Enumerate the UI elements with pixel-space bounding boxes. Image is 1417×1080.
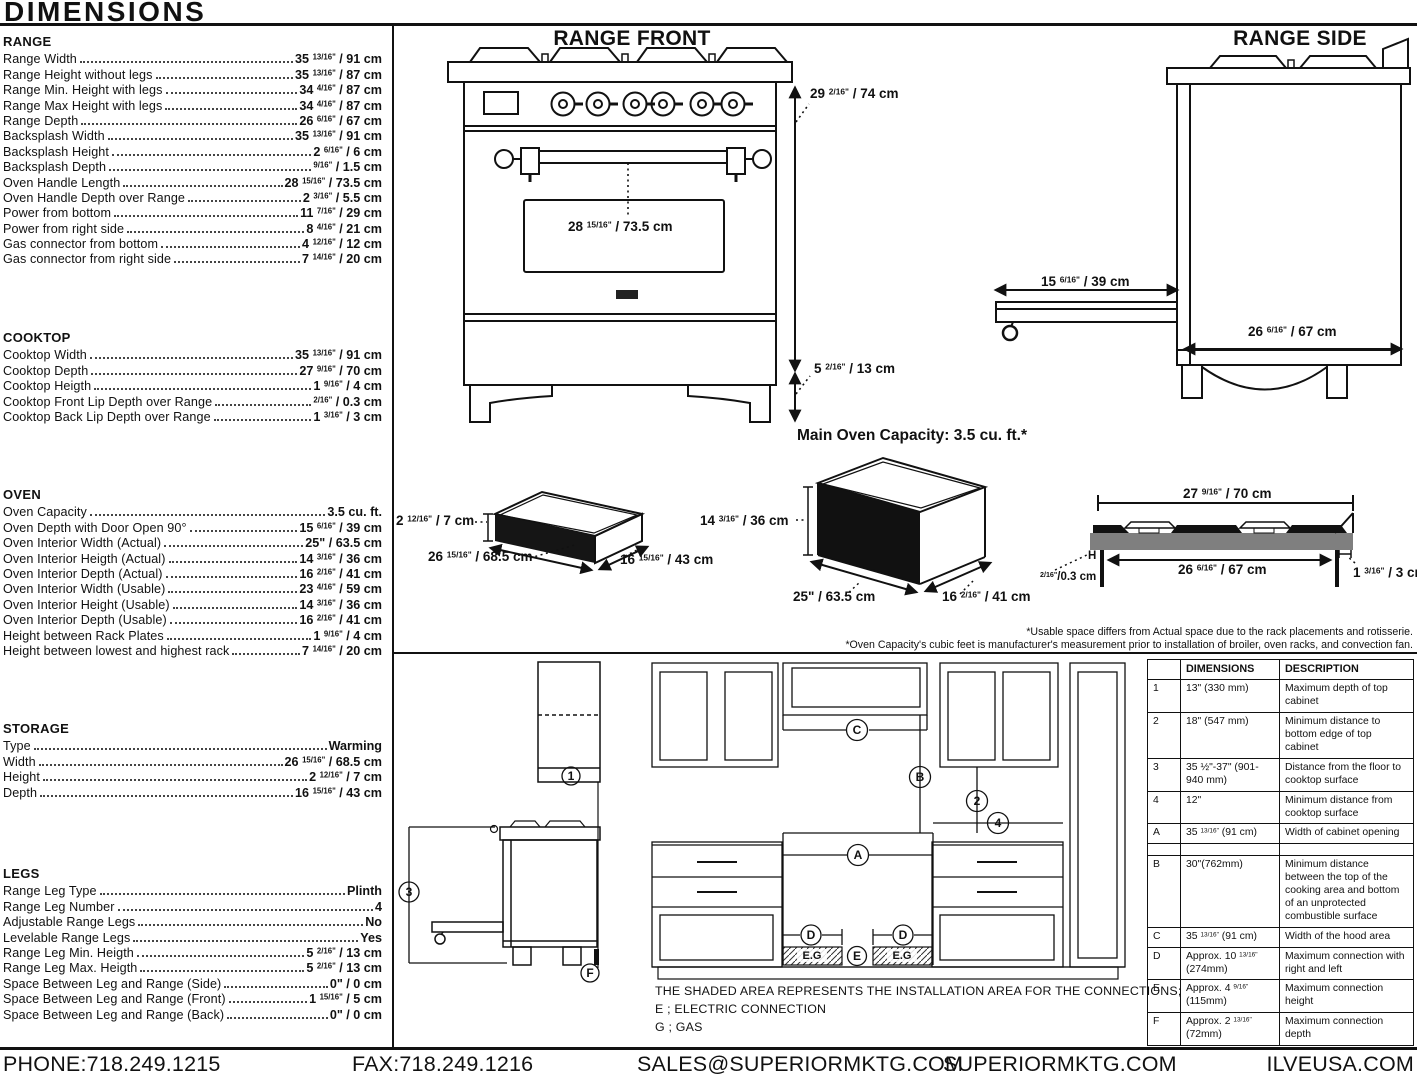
backsplash-lip bbox=[1383, 39, 1408, 68]
spec-value: Warming bbox=[329, 739, 382, 753]
svg-text:D: D bbox=[899, 928, 908, 942]
dotted-leader bbox=[229, 1001, 307, 1003]
spec-row: Range Leg Min. Heigth5 2/16" / 13 cm bbox=[3, 945, 382, 960]
spec-row: Oven Interior Width (Usable)23 4/16" / 5… bbox=[3, 581, 382, 596]
spec-value: 2 12/16" / 7 cm bbox=[309, 770, 382, 784]
spec-row: Oven Interior Height (Usable)14 3/16" / … bbox=[3, 596, 382, 611]
install-dimensions-table: DIMENSIONSDESCRIPTION 113" (330 mm)Maxim… bbox=[1147, 659, 1414, 1046]
range-front-handle-label: 28 15/16" / 73.5 cm bbox=[568, 219, 672, 234]
section-heading: COOKTOP bbox=[3, 330, 382, 345]
dotted-leader bbox=[165, 108, 297, 110]
mid-horizontal-divider bbox=[392, 652, 1417, 654]
spec-label: Oven Interior Depth (Actual) bbox=[3, 567, 163, 581]
spec-label: Oven Interior Heigth (Actual) bbox=[3, 552, 166, 566]
cell-dim: 12" bbox=[1181, 791, 1280, 824]
plinth-legs bbox=[470, 385, 770, 422]
spec-label: Range Leg Min. Heigth bbox=[3, 946, 134, 960]
install-table-head: DIMENSIONSDESCRIPTION bbox=[1148, 660, 1414, 680]
spec-row: Space Between Leg and Range (Side)0" / 0… bbox=[3, 975, 382, 990]
storage-width-label: 26 15/16" / 68.5 cm bbox=[428, 549, 532, 564]
callout-e: E bbox=[848, 947, 867, 966]
spec-row: Height2 12/16" / 7 cm bbox=[3, 769, 382, 784]
door-caster bbox=[435, 934, 445, 944]
table-row bbox=[1148, 844, 1414, 856]
cell-id: 1 bbox=[1148, 680, 1181, 713]
dotted-leader bbox=[40, 795, 293, 797]
spec-row: Oven Handle Depth over Range2 3/16" / 5.… bbox=[3, 190, 382, 205]
spec-section-storage: STORAGETypeWarmingWidth26 15/16" / 68.5 … bbox=[3, 721, 382, 800]
spec-row: Width26 15/16" / 68.5 cm bbox=[3, 753, 382, 768]
spec-row: Range Max Height with legs34 4/16" / 87 … bbox=[3, 97, 382, 112]
spec-label: Range Width bbox=[3, 52, 77, 66]
spec-value: 34 4/16" / 87 cm bbox=[299, 99, 382, 113]
cell-dim: 30"(762mm) bbox=[1181, 856, 1280, 927]
spec-value: 7 14/16" / 20 cm bbox=[302, 644, 382, 658]
spec-label: Cooktop Heigth bbox=[3, 379, 91, 393]
dotted-leader bbox=[114, 215, 298, 217]
cell-dim: 35 ½"-37" (901-940 mm) bbox=[1181, 758, 1280, 791]
spec-label: Backsplash Width bbox=[3, 129, 105, 143]
cell-dim: Approx. 2 13/16" (72mm) bbox=[1181, 1013, 1280, 1046]
display-window bbox=[484, 92, 518, 114]
dotted-leader bbox=[90, 357, 293, 359]
spec-row: Cooktop Heigth1 9/16" / 4 cm bbox=[3, 378, 382, 393]
cell-id: D bbox=[1148, 947, 1181, 980]
spec-row: Power from right side8 4/16" / 21 cm bbox=[3, 220, 382, 235]
spec-row: Height between Rack Plates1 9/16" / 4 cm bbox=[3, 627, 382, 642]
side-legs bbox=[1182, 365, 1347, 398]
dotted-leader bbox=[81, 123, 297, 125]
side-dimension-arrows bbox=[996, 290, 1401, 349]
spec-label: Range Min. Height with legs bbox=[3, 83, 163, 97]
spec-label: Backsplash Depth bbox=[3, 160, 106, 174]
cell-dim: Approx. 4 9/16" (115mm) bbox=[1181, 980, 1280, 1013]
dotted-leader bbox=[227, 1017, 328, 1019]
spec-label: Range Leg Max. Heigth bbox=[3, 961, 137, 975]
door-caster bbox=[1003, 326, 1017, 340]
section-heading: LEGS bbox=[3, 866, 382, 881]
dimension-arrows bbox=[628, 88, 810, 420]
spec-row: Oven Interior Depth (Actual)16 2/16" / 4… bbox=[3, 566, 382, 581]
svg-text:F: F bbox=[586, 966, 593, 980]
spec-label: Gas connector from bottom bbox=[3, 237, 158, 251]
control-knobs bbox=[552, 93, 754, 116]
cooktop-h-mark: H bbox=[1088, 550, 1096, 562]
cooktop-top-width-label: 27 9/16" / 70 cm bbox=[1183, 486, 1272, 501]
dotted-leader bbox=[169, 561, 298, 563]
spec-label: Height between lowest and highest rack bbox=[3, 644, 229, 658]
footer-phone: PHONE:718.249.1215 bbox=[3, 1052, 221, 1077]
spec-value: 4 12/16" / 12 cm bbox=[302, 237, 382, 251]
range-side-profile bbox=[491, 821, 601, 965]
spec-row: Oven Interior Depth (Usable)16 2/16" / 4… bbox=[3, 612, 382, 627]
svg-text:3: 3 bbox=[406, 885, 413, 899]
spec-value: 35 13/16" / 87 cm bbox=[295, 68, 382, 82]
floor-height-bracket bbox=[409, 827, 507, 963]
spec-label: Space Between Leg and Range (Back) bbox=[3, 1008, 224, 1022]
cell-dim: 35 13/16" (91 cm) bbox=[1181, 824, 1280, 844]
spec-value: No bbox=[365, 915, 382, 929]
cell-id: E bbox=[1148, 980, 1181, 1013]
table-header: DIMENSIONS bbox=[1181, 660, 1280, 680]
table-row: DApprox. 10 13/16" (274mm)Maximum connec… bbox=[1148, 947, 1414, 980]
spec-label: Range Leg Type bbox=[3, 884, 97, 898]
spec-label: Cooktop Back Lip Depth over Range bbox=[3, 410, 211, 424]
spec-value: 0" / 0 cm bbox=[330, 1008, 382, 1022]
dotted-leader bbox=[167, 638, 312, 640]
spec-value: 7 14/16" / 20 cm bbox=[302, 252, 382, 266]
spec-label: Cooktop Depth bbox=[3, 364, 88, 378]
spec-value: 16 2/16" / 41 cm bbox=[299, 567, 382, 581]
spec-row: Oven Depth with Door Open 90°15 6/16" / … bbox=[3, 519, 382, 534]
dotted-leader bbox=[232, 653, 300, 655]
cell-id: A bbox=[1148, 824, 1181, 844]
dotted-leader bbox=[188, 200, 301, 202]
dotted-leader bbox=[112, 154, 311, 156]
spec-row: Adjustable Range LegsNo bbox=[3, 914, 382, 929]
spec-value: 0" / 0 cm bbox=[330, 977, 382, 991]
install-side-drawing: 1 3 F bbox=[395, 655, 645, 1010]
dotted-leader bbox=[43, 779, 307, 781]
install-table-body: 113" (330 mm)Maximum depth of top cabine… bbox=[1148, 680, 1414, 1046]
footer-email[interactable]: SALES@SUPERIORMKTG.COM bbox=[637, 1052, 963, 1077]
footer-fax: FAX:718.249.1216 bbox=[352, 1052, 533, 1077]
dotted-leader bbox=[166, 576, 298, 578]
cell-desc: Maximum depth of top cabinet bbox=[1280, 680, 1414, 713]
eg-label-right: E.G bbox=[893, 950, 912, 962]
spec-value: 2/16" / 0.3 cm bbox=[313, 395, 382, 409]
footer-brand-site[interactable]: ILVEUSA.COM bbox=[1266, 1052, 1414, 1077]
dotted-leader bbox=[168, 591, 297, 593]
spec-row: Backsplash Height2 6/16" / 6 cm bbox=[3, 143, 382, 158]
dotted-leader bbox=[127, 231, 304, 233]
section-heading: STORAGE bbox=[3, 721, 382, 736]
spec-value: 5 2/16" / 13 cm bbox=[306, 946, 382, 960]
floor-toe-kick bbox=[652, 967, 1125, 979]
callout-a: A bbox=[848, 845, 869, 866]
spec-label: Space Between Leg and Range (Front) bbox=[3, 992, 226, 1006]
dotted-leader bbox=[215, 404, 311, 406]
cell-desc: Minimum distance between the top of the … bbox=[1280, 856, 1414, 927]
cell-dim: 18" (547 mm) bbox=[1181, 713, 1280, 759]
spec-section-cooktop: COOKTOPCooktop Width35 13/16" / 91 cmCoo… bbox=[3, 330, 382, 424]
dotted-leader bbox=[224, 986, 327, 988]
dotted-leader bbox=[80, 61, 293, 63]
top-cabinet bbox=[538, 662, 600, 782]
cell-id: 2 bbox=[1148, 713, 1181, 759]
svg-text:A: A bbox=[854, 848, 863, 862]
oven-door-window bbox=[524, 200, 724, 272]
spec-label: Oven Depth with Door Open 90° bbox=[3, 521, 187, 535]
spec-label: Range Height without legs bbox=[3, 68, 153, 82]
cell-id: B bbox=[1148, 856, 1181, 927]
footnote-oven-capacity: *Oven Capacity's cubic feet is manufactu… bbox=[513, 639, 1413, 652]
dotted-leader bbox=[94, 388, 311, 390]
cooktop-bottom-width-label: 26 6/16" / 67 cm bbox=[1178, 562, 1267, 577]
spec-label: Backsplash Height bbox=[3, 145, 109, 159]
spec-label: Range Leg Number bbox=[3, 900, 115, 914]
spec-row: Depth16 15/16" / 43 cm bbox=[3, 784, 382, 799]
spec-row: TypeWarming bbox=[3, 738, 382, 753]
spec-label: Depth bbox=[3, 786, 37, 800]
spec-row: Oven Capacity3.5 cu. ft. bbox=[3, 504, 382, 519]
cooktop-back-lip-label: 1 3/16" / 3 cm bbox=[1353, 565, 1417, 580]
open-door-profile bbox=[432, 922, 503, 944]
dimensions-spec-sheet: { "page_title": "DIMENSIONS", "colors": … bbox=[0, 0, 1417, 1080]
dotted-leader bbox=[91, 373, 297, 375]
dotted-leader bbox=[138, 924, 363, 926]
install-front-drawing: E.G E.G C B 2 4 A D D E bbox=[645, 655, 1140, 985]
spec-row: Cooktop Width35 13/16" / 91 cm bbox=[3, 347, 382, 362]
side-cooktop bbox=[1167, 39, 1410, 84]
spec-value: 14 3/16" / 36 cm bbox=[299, 552, 382, 566]
spec-value: 35 13/16" / 91 cm bbox=[295, 52, 382, 66]
brand-logo-plate bbox=[616, 290, 638, 299]
install-legend-electric: E ; ELECTRIC CONNECTION bbox=[655, 1002, 826, 1016]
spec-label: Oven Capacity bbox=[3, 505, 87, 519]
cell-dim: 13" (330 mm) bbox=[1181, 680, 1280, 713]
cell-desc: Minimum distance to bottom edge of top c… bbox=[1280, 713, 1414, 759]
spec-label: Oven Interior Width (Actual) bbox=[3, 536, 161, 550]
spec-value: 16 15/16" / 43 cm bbox=[295, 786, 382, 800]
spec-value: 1 15/16" / 5 cm bbox=[309, 992, 382, 1006]
table-row: B30"(762mm)Minimum distance between the … bbox=[1148, 856, 1414, 927]
spec-label: Power from right side bbox=[3, 222, 124, 236]
spec-value: 35 13/16" / 91 cm bbox=[295, 129, 382, 143]
spec-row: Gas connector from right side7 14/16" / … bbox=[3, 251, 382, 266]
spec-value: 11 7/16" / 29 cm bbox=[300, 206, 382, 220]
cell-desc bbox=[1280, 844, 1414, 856]
dotted-leader bbox=[161, 246, 300, 248]
spec-value: 2 3/16" / 5.5 cm bbox=[303, 191, 382, 205]
cell-desc: Maximum connection depth bbox=[1280, 1013, 1414, 1046]
range-front-leg-label: 5 2/16" / 13 cm bbox=[814, 361, 895, 376]
oven-height-label: 14 3/16" / 36 cm bbox=[700, 513, 789, 528]
spec-row: Height between lowest and highest rack7 … bbox=[3, 643, 382, 658]
eg-label-left: E.G bbox=[803, 950, 822, 962]
table-header-row: DIMENSIONSDESCRIPTION bbox=[1148, 660, 1414, 680]
spec-value: 5 2/16" / 13 cm bbox=[306, 961, 382, 975]
spec-label: Oven Interior Width (Usable) bbox=[3, 582, 165, 596]
spec-label: Height bbox=[3, 770, 40, 784]
table-header bbox=[1148, 660, 1181, 680]
cell-id: 3 bbox=[1148, 758, 1181, 791]
cell-dim: 35 13/16" (91 cm) bbox=[1181, 927, 1280, 947]
callout-c: C bbox=[847, 720, 868, 741]
cooktop-burner-profile bbox=[1093, 522, 1347, 533]
cell-dim: Approx. 10 13/16" (274mm) bbox=[1181, 947, 1280, 980]
spec-row: Oven Interior Width (Actual)25" / 63.5 c… bbox=[3, 535, 382, 550]
spec-row: Space Between Leg and Range (Front)1 15/… bbox=[3, 991, 382, 1006]
dotted-leader bbox=[214, 419, 312, 421]
dotted-leader bbox=[140, 970, 304, 972]
spec-row: Range Width35 13/16" / 91 cm bbox=[3, 51, 382, 66]
table-row: 113" (330 mm)Maximum depth of top cabine… bbox=[1148, 680, 1414, 713]
spec-label: Type bbox=[3, 739, 31, 753]
callout-f: F bbox=[581, 964, 599, 982]
cell-id: C bbox=[1148, 927, 1181, 947]
spec-value: 8 4/16" / 21 cm bbox=[306, 222, 382, 236]
dotted-leader bbox=[109, 169, 311, 171]
storage-height-label: 2 12/16" / 7 cm bbox=[396, 513, 474, 528]
dotted-leader bbox=[123, 185, 282, 187]
cell-desc: Minimum distance from cooktop surface bbox=[1280, 791, 1414, 824]
spec-label: Cooktop Front Lip Depth over Range bbox=[3, 395, 212, 409]
spec-value: 34 4/16" / 87 cm bbox=[299, 83, 382, 97]
dotted-leader bbox=[90, 514, 326, 516]
side-body bbox=[1177, 84, 1401, 365]
callout-d-right: D bbox=[893, 925, 913, 945]
spec-value: 1 9/16" / 4 cm bbox=[313, 379, 382, 393]
spec-label: Power from bottom bbox=[3, 206, 111, 220]
callout-d-left: D bbox=[801, 925, 821, 945]
spec-row: Range Leg TypePlinth bbox=[3, 883, 382, 898]
spec-value: 2 6/16" / 6 cm bbox=[313, 145, 382, 159]
cell-id: 4 bbox=[1148, 791, 1181, 824]
dotted-leader bbox=[133, 940, 358, 942]
cooktop-slab bbox=[1090, 533, 1353, 550]
spec-value: 16 2/16" / 41 cm bbox=[299, 613, 382, 627]
dotted-leader bbox=[34, 748, 327, 750]
spec-row: Range Leg Max. Heigth5 2/16" / 13 cm bbox=[3, 960, 382, 975]
range-side-door-label: 15 6/16" / 39 cm bbox=[1041, 274, 1130, 289]
oven-door-handle bbox=[495, 148, 771, 182]
spec-row: Range Height without legs35 13/16" / 87 … bbox=[3, 66, 382, 81]
spec-section-range: RANGERange Width35 13/16" / 91 cmRange H… bbox=[3, 34, 382, 266]
svg-text:4: 4 bbox=[995, 816, 1002, 830]
spec-value: 3.5 cu. ft. bbox=[327, 505, 382, 519]
spec-value: Plinth bbox=[347, 884, 382, 898]
dotted-leader bbox=[170, 622, 298, 624]
table-row: 412"Minimum distance from cooktop surfac… bbox=[1148, 791, 1414, 824]
spec-value: Yes bbox=[360, 931, 382, 945]
cell-desc: Width of cabinet opening bbox=[1280, 824, 1414, 844]
table-row: FApprox. 2 13/16" (72mm)Maximum connecti… bbox=[1148, 1013, 1414, 1046]
spec-value: 35 13/16" / 91 cm bbox=[295, 348, 382, 362]
svg-text:C: C bbox=[853, 723, 862, 737]
spec-label: Adjustable Range Legs bbox=[3, 915, 135, 929]
oven-depth-label: 16 2/16" / 41 cm bbox=[942, 589, 1031, 604]
spec-value: 1 3/16" / 3 cm bbox=[313, 410, 382, 424]
cell-id: F bbox=[1148, 1013, 1181, 1046]
spec-label: Width bbox=[3, 755, 36, 769]
dotted-leader bbox=[137, 955, 304, 957]
spec-row: Space Between Leg and Range (Back)0" / 0… bbox=[3, 1006, 382, 1021]
spec-value: 4 bbox=[375, 900, 382, 914]
spec-label: Oven Interior Depth (Usable) bbox=[3, 613, 167, 627]
dotted-leader bbox=[173, 607, 298, 609]
cell-dim bbox=[1181, 844, 1280, 856]
drawer-trim-lines bbox=[464, 314, 776, 321]
spec-row: Gas connector from bottom4 12/16" / 12 c… bbox=[3, 236, 382, 251]
table-row: 218" (547 mm)Minimum distance to bottom … bbox=[1148, 713, 1414, 759]
spec-label: Oven Handle Depth over Range bbox=[3, 191, 185, 205]
dotted-leader bbox=[39, 764, 283, 766]
spec-row: Range Min. Height with legs34 4/16" / 87… bbox=[3, 82, 382, 97]
callout-1: 1 bbox=[562, 767, 580, 785]
spec-value: 28 15/16" / 73.5 cm bbox=[285, 176, 382, 190]
spec-value: 1 9/16" / 4 cm bbox=[313, 629, 382, 643]
dotted-leader bbox=[164, 545, 303, 547]
spec-row: Oven Handle Length28 15/16" / 73.5 cm bbox=[3, 174, 382, 189]
spec-row: Backsplash Width35 13/16" / 91 cm bbox=[3, 128, 382, 143]
spec-panel: RANGERange Width35 13/16" / 91 cmRange H… bbox=[0, 0, 392, 1048]
spec-value: 23 4/16" / 59 cm bbox=[299, 582, 382, 596]
spec-label: Space Between Leg and Range (Side) bbox=[3, 977, 221, 991]
footnotes: *Usable space differs from Actual space … bbox=[513, 626, 1413, 651]
spec-value: 26 15/16" / 68.5 cm bbox=[285, 755, 382, 769]
spec-section-legs: LEGSRange Leg TypePlinthRange Leg Number… bbox=[3, 866, 382, 1022]
cell-id bbox=[1148, 844, 1181, 856]
spec-row: Power from bottom11 7/16" / 29 cm bbox=[3, 205, 382, 220]
svg-text:2: 2 bbox=[974, 794, 981, 808]
spec-value: 14 3/16" / 36 cm bbox=[299, 598, 382, 612]
cell-desc: Distance from the floor to cooktop surfa… bbox=[1280, 758, 1414, 791]
connection-depth-block bbox=[594, 949, 599, 965]
spec-row: Cooktop Back Lip Depth over Range1 3/16"… bbox=[3, 409, 382, 424]
dotted-leader bbox=[118, 909, 373, 911]
dotted-leader bbox=[166, 92, 298, 94]
spec-row: Levelable Range LegsYes bbox=[3, 929, 382, 944]
spec-label: Gas connector from right side bbox=[3, 252, 171, 266]
range-side-depth-label: 26 6/16" / 67 cm bbox=[1248, 324, 1337, 339]
dotted-leader bbox=[190, 530, 298, 532]
range-side-drawing bbox=[980, 22, 1417, 422]
section-heading: OVEN bbox=[3, 487, 382, 502]
spec-label: Oven Interior Height (Usable) bbox=[3, 598, 170, 612]
spec-value: 27 9/16" / 70 cm bbox=[299, 364, 382, 378]
table-row: A35 13/16" (91 cm)Width of cabinet openi… bbox=[1148, 824, 1414, 844]
main-oven-title: Main Oven Capacity: 3.5 cu. ft.* bbox=[797, 427, 1027, 445]
svg-text:D: D bbox=[807, 928, 816, 942]
table-header: DESCRIPTION bbox=[1280, 660, 1414, 680]
install-legend-gas: G ; GAS bbox=[655, 1020, 703, 1034]
cooktop-front-lip-label: 2/16"/0.3 cm bbox=[1040, 571, 1096, 583]
table-row: 335 ½"-37" (901-940 mm)Distance from the… bbox=[1148, 758, 1414, 791]
footnote-usable-space: *Usable space differs from Actual space … bbox=[513, 626, 1413, 639]
spec-section-oven: OVENOven Capacity3.5 cu. ft.Oven Depth w… bbox=[3, 487, 382, 658]
section-heading: RANGE bbox=[3, 34, 382, 49]
spec-value: 26 6/16" / 67 cm bbox=[299, 114, 382, 128]
svg-text:B: B bbox=[916, 770, 925, 784]
spec-value: 9/16" / 1.5 cm bbox=[313, 160, 382, 174]
svg-text:1: 1 bbox=[568, 769, 575, 783]
dotted-leader bbox=[100, 893, 345, 895]
install-note-title: THE SHADED AREA REPRESENTS THE INSTALLAT… bbox=[655, 984, 1182, 998]
cell-desc: Maximum connection with right and left bbox=[1280, 947, 1414, 980]
spec-label: Cooktop Width bbox=[3, 348, 87, 362]
spec-row: Range Leg Number4 bbox=[3, 898, 382, 913]
spec-label: Levelable Range Legs bbox=[3, 931, 130, 945]
svg-text:E: E bbox=[853, 949, 861, 963]
spec-row: Range Depth26 6/16" / 67 cm bbox=[3, 113, 382, 128]
cell-desc: Width of the hood area bbox=[1280, 927, 1414, 947]
footer-website[interactable]: SUPERIORMKTG.COM bbox=[943, 1052, 1177, 1077]
spec-row: Oven Interior Heigth (Actual)14 3/16" / … bbox=[3, 550, 382, 565]
spec-label: Oven Handle Length bbox=[3, 176, 120, 190]
dotted-leader bbox=[108, 138, 293, 140]
spec-label: Range Max Height with legs bbox=[3, 99, 162, 113]
spec-label: Height between Rack Plates bbox=[3, 629, 164, 643]
cell-desc: Maximum connection height bbox=[1280, 980, 1414, 1013]
spec-value: 15 6/16" / 39 cm bbox=[299, 521, 382, 535]
table-row: C35 13/16" (91 cm)Width of the hood area bbox=[1148, 927, 1414, 947]
burner-grates bbox=[470, 48, 787, 62]
spec-row: Backsplash Depth9/16" / 1.5 cm bbox=[3, 159, 382, 174]
range-front-height-label: 29 2/16" / 74 cm bbox=[810, 86, 899, 101]
table-row: EApprox. 4 9/16" (115mm)Maximum connecti… bbox=[1148, 980, 1414, 1013]
spec-row: Cooktop Front Lip Depth over Range2/16" … bbox=[3, 393, 382, 408]
